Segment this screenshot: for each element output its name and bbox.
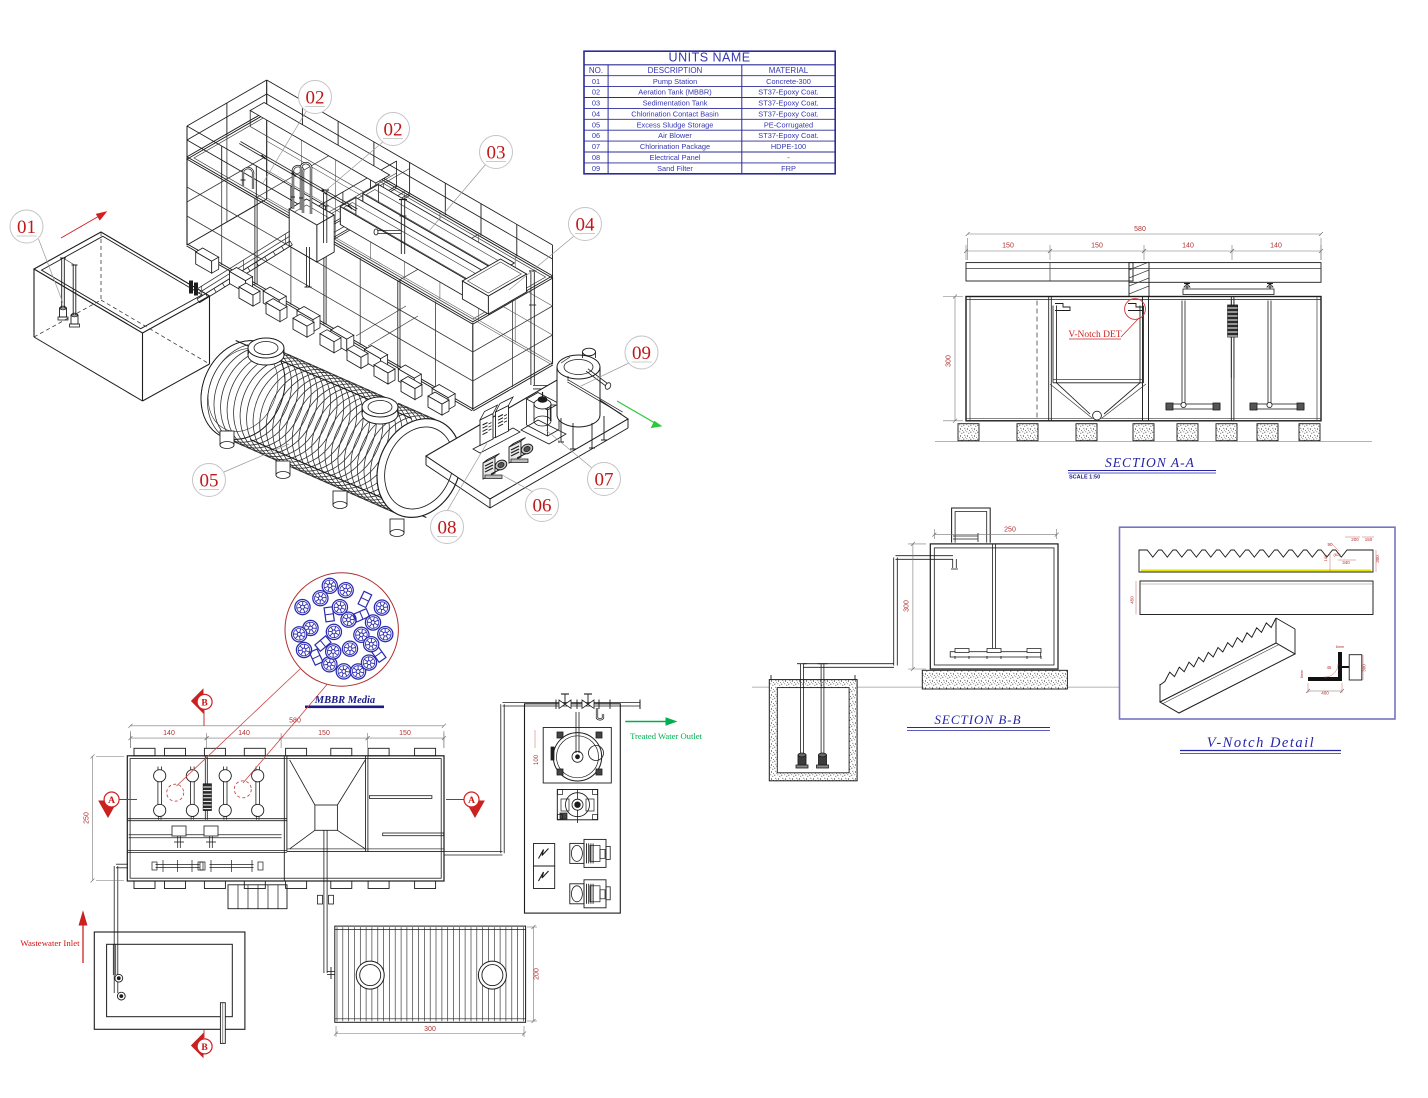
svg-text:HDPE-100: HDPE-100 <box>771 142 806 151</box>
svg-text:Pump Station: Pump Station <box>653 77 697 86</box>
svg-text:MATERIAL: MATERIAL <box>769 66 809 75</box>
svg-text:SECTION A-A: SECTION A-A <box>1105 455 1195 470</box>
svg-text:Excess Sludge Storage: Excess Sludge Storage <box>637 120 714 129</box>
svg-text:01: 01 <box>17 217 36 238</box>
svg-text:09: 09 <box>632 343 651 364</box>
svg-text:02: 02 <box>592 88 600 97</box>
svg-text:03: 03 <box>487 143 506 164</box>
svg-text:ST37-Epoxy Coat.: ST37-Epoxy Coat. <box>758 131 818 140</box>
svg-text:340: 340 <box>1342 560 1350 565</box>
svg-text:07: 07 <box>592 142 600 151</box>
svg-text:Chlorination Contact Basin: Chlorination Contact Basin <box>631 110 719 119</box>
svg-text:06: 06 <box>592 131 600 140</box>
svg-text:06: 06 <box>533 496 552 517</box>
svg-text:A: A <box>468 796 475 806</box>
svg-text:6mm: 6mm <box>1300 670 1304 678</box>
svg-text:300: 300 <box>424 1026 436 1033</box>
svg-text:07: 07 <box>595 470 614 491</box>
svg-text:Air Blower: Air Blower <box>658 131 692 140</box>
svg-text:03: 03 <box>592 99 600 108</box>
svg-text:150: 150 <box>1091 243 1103 250</box>
svg-text:NO.: NO. <box>589 66 603 75</box>
svg-text:V-Notch DET: V-Notch DET <box>1068 330 1121 340</box>
svg-text:Concrete-300: Concrete-300 <box>766 77 811 86</box>
svg-text:SCALE 1:50: SCALE 1:50 <box>1069 475 1100 481</box>
svg-text:V-Notch Detail: V-Notch Detail <box>1207 735 1315 751</box>
svg-text:140: 140 <box>1182 243 1194 250</box>
svg-text:Wastewater Inlet: Wastewater Inlet <box>20 938 80 948</box>
svg-text:250: 250 <box>84 812 91 824</box>
svg-text:580: 580 <box>1134 226 1146 233</box>
svg-text:B: B <box>201 699 208 709</box>
svg-text:Sand Filter: Sand Filter <box>657 164 693 173</box>
svg-text:400: 400 <box>1321 691 1329 696</box>
svg-text:300: 300 <box>904 600 911 612</box>
svg-text:200: 200 <box>1351 537 1359 542</box>
svg-text:150: 150 <box>1002 243 1014 250</box>
svg-text:200: 200 <box>534 968 541 980</box>
svg-text:140: 140 <box>1270 243 1282 250</box>
svg-text:B: B <box>201 1043 208 1053</box>
svg-text:300: 300 <box>1362 664 1367 672</box>
svg-text:02: 02 <box>384 120 403 141</box>
svg-text:140: 140 <box>163 730 175 737</box>
svg-text:FRP: FRP <box>781 164 796 173</box>
svg-text:Sedimentation Tank: Sedimentation Tank <box>643 99 708 108</box>
svg-text:04: 04 <box>592 110 600 119</box>
svg-text:05: 05 <box>592 120 600 129</box>
svg-text:ST37-Epoxy Coat.: ST37-Epoxy Coat. <box>758 110 818 119</box>
svg-text:300: 300 <box>946 355 953 367</box>
svg-text:100: 100 <box>534 754 540 765</box>
svg-text:UNITS NAME: UNITS NAME <box>669 51 751 65</box>
svg-text:PE-Corrugated: PE-Corrugated <box>764 120 813 129</box>
svg-text:100: 100 <box>1323 554 1328 561</box>
svg-text:02: 02 <box>306 88 325 109</box>
svg-text:45: 45 <box>1327 665 1332 670</box>
svg-text:01: 01 <box>592 77 600 86</box>
svg-text:250: 250 <box>1004 527 1016 534</box>
svg-text:08: 08 <box>592 153 600 162</box>
svg-text:150: 150 <box>1365 537 1373 542</box>
svg-text:ST37-Epoxy Coat.: ST37-Epoxy Coat. <box>758 88 818 97</box>
svg-text:6mm: 6mm <box>1336 645 1344 649</box>
svg-text:Aeration Tank (MBBR): Aeration Tank (MBBR) <box>638 88 711 97</box>
svg-text:450: 450 <box>1130 596 1135 604</box>
svg-text:SECTION B-B: SECTION B-B <box>934 712 1021 727</box>
svg-text:Electrical Panel: Electrical Panel <box>650 153 701 162</box>
svg-text:140: 140 <box>238 730 250 737</box>
svg-text:150: 150 <box>399 730 411 737</box>
svg-text:580: 580 <box>289 718 301 725</box>
svg-text:MBBR Media: MBBR Media <box>314 695 375 706</box>
svg-text:ST37-Epoxy Coat.: ST37-Epoxy Coat. <box>758 99 818 108</box>
svg-text:DESCRIPTION: DESCRIPTION <box>648 66 703 75</box>
svg-text:(62): (62) <box>1333 552 1341 557</box>
svg-text:08: 08 <box>438 518 457 539</box>
svg-text:09: 09 <box>592 164 600 173</box>
svg-text:Treated Water Outlet: Treated Water Outlet <box>630 731 702 741</box>
svg-text:05: 05 <box>200 471 219 492</box>
svg-text:A: A <box>108 796 115 806</box>
svg-text:150: 150 <box>318 730 330 737</box>
svg-text:Chlorination Package: Chlorination Package <box>640 142 710 151</box>
svg-text:04: 04 <box>576 215 596 236</box>
